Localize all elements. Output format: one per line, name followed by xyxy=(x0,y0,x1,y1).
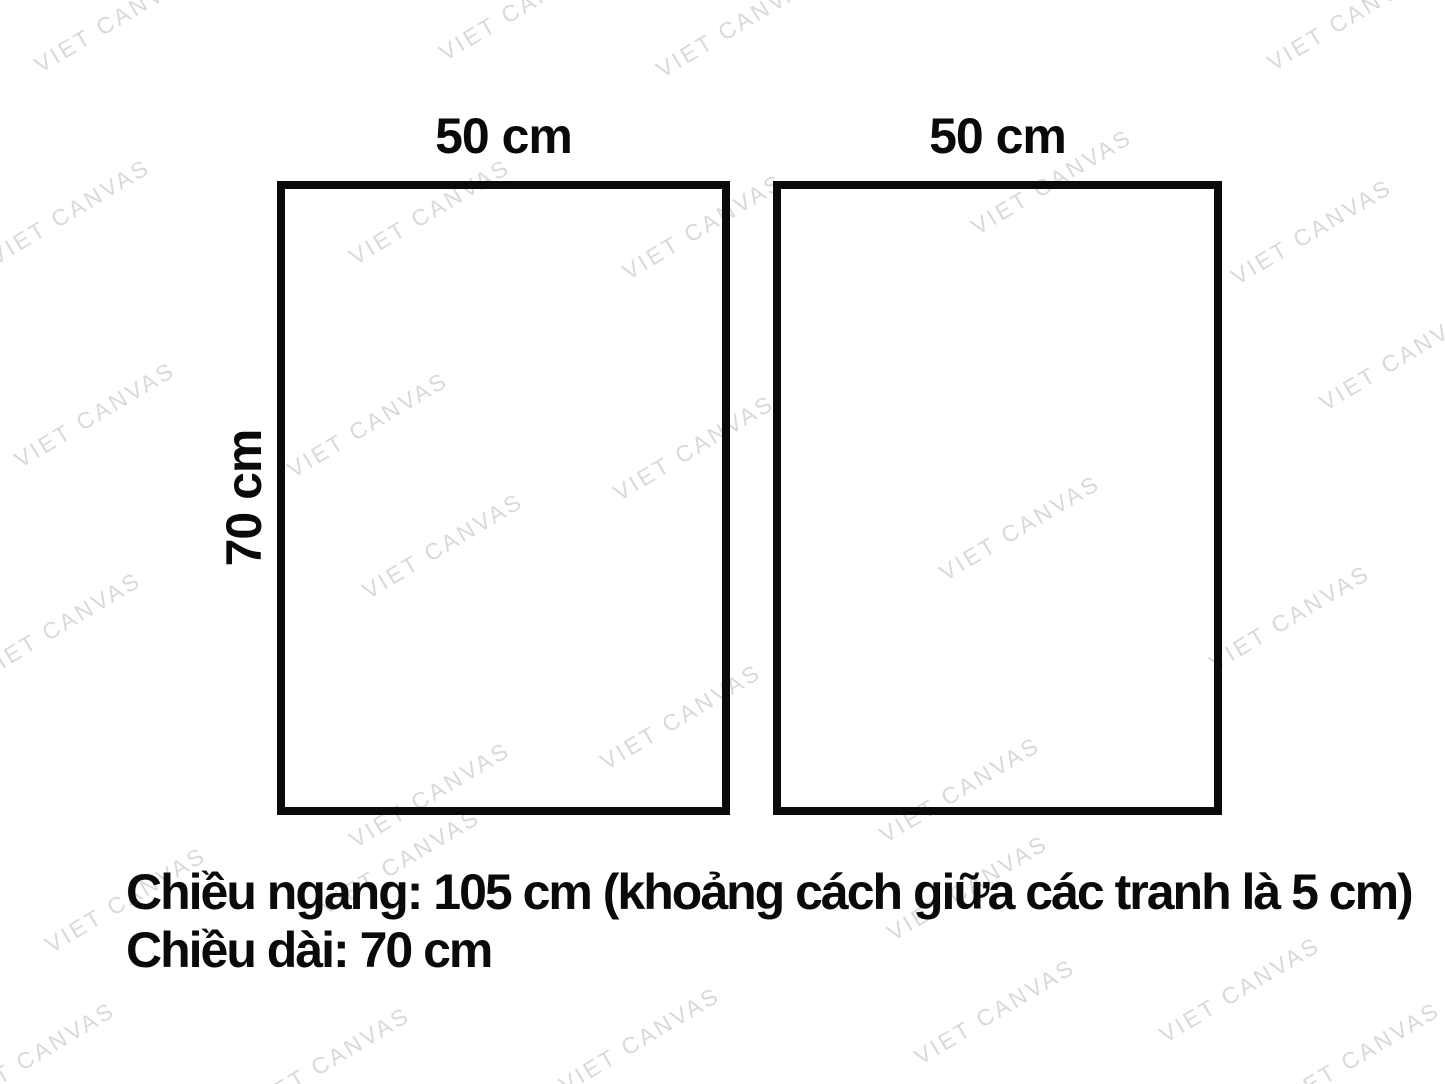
caption-line-vertical: Chiều dài: 70 cm xyxy=(126,921,1412,979)
watermark-text: VIET CANVAS xyxy=(435,0,606,67)
watermark-text: VIET CANVAS xyxy=(0,566,146,683)
watermark-text: VIET CANVAS xyxy=(10,356,181,473)
watermark-text: VIET CANVAS xyxy=(245,1001,416,1084)
watermark-text: VIET CANVAS xyxy=(1275,996,1445,1084)
watermark-text: VIET CANVAS xyxy=(1205,559,1376,676)
panel-1-frame xyxy=(277,181,730,815)
watermark-text: VIET CANVAS xyxy=(555,981,726,1084)
watermark-text: VIET CANVAS xyxy=(30,0,201,79)
panel-2-width-label: 50 cm xyxy=(773,108,1222,164)
watermark-text: VIET CANVAS xyxy=(1315,299,1445,416)
watermark-text: VIET CANVAS xyxy=(652,0,823,84)
caption-line-horizontal: Chiều ngang: 105 cm (khoảng cách giữa cá… xyxy=(126,863,1412,921)
watermark-text: VIET CANVAS xyxy=(0,996,120,1084)
panel-2-frame xyxy=(773,181,1222,815)
dimension-diagram: VIET CANVASVIET CANVASVIET CANVASVIET CA… xyxy=(0,0,1445,1084)
watermark-text: VIET CANVAS xyxy=(1227,173,1398,290)
panel-1-width-label: 50 cm xyxy=(277,108,730,164)
caption: Chiều ngang: 105 cm (khoảng cách giữa cá… xyxy=(126,863,1412,979)
watermark-text: VIET CANVAS xyxy=(0,153,155,270)
watermark-text: VIET CANVAS xyxy=(1263,0,1434,77)
height-label: 70 cm xyxy=(216,398,274,598)
